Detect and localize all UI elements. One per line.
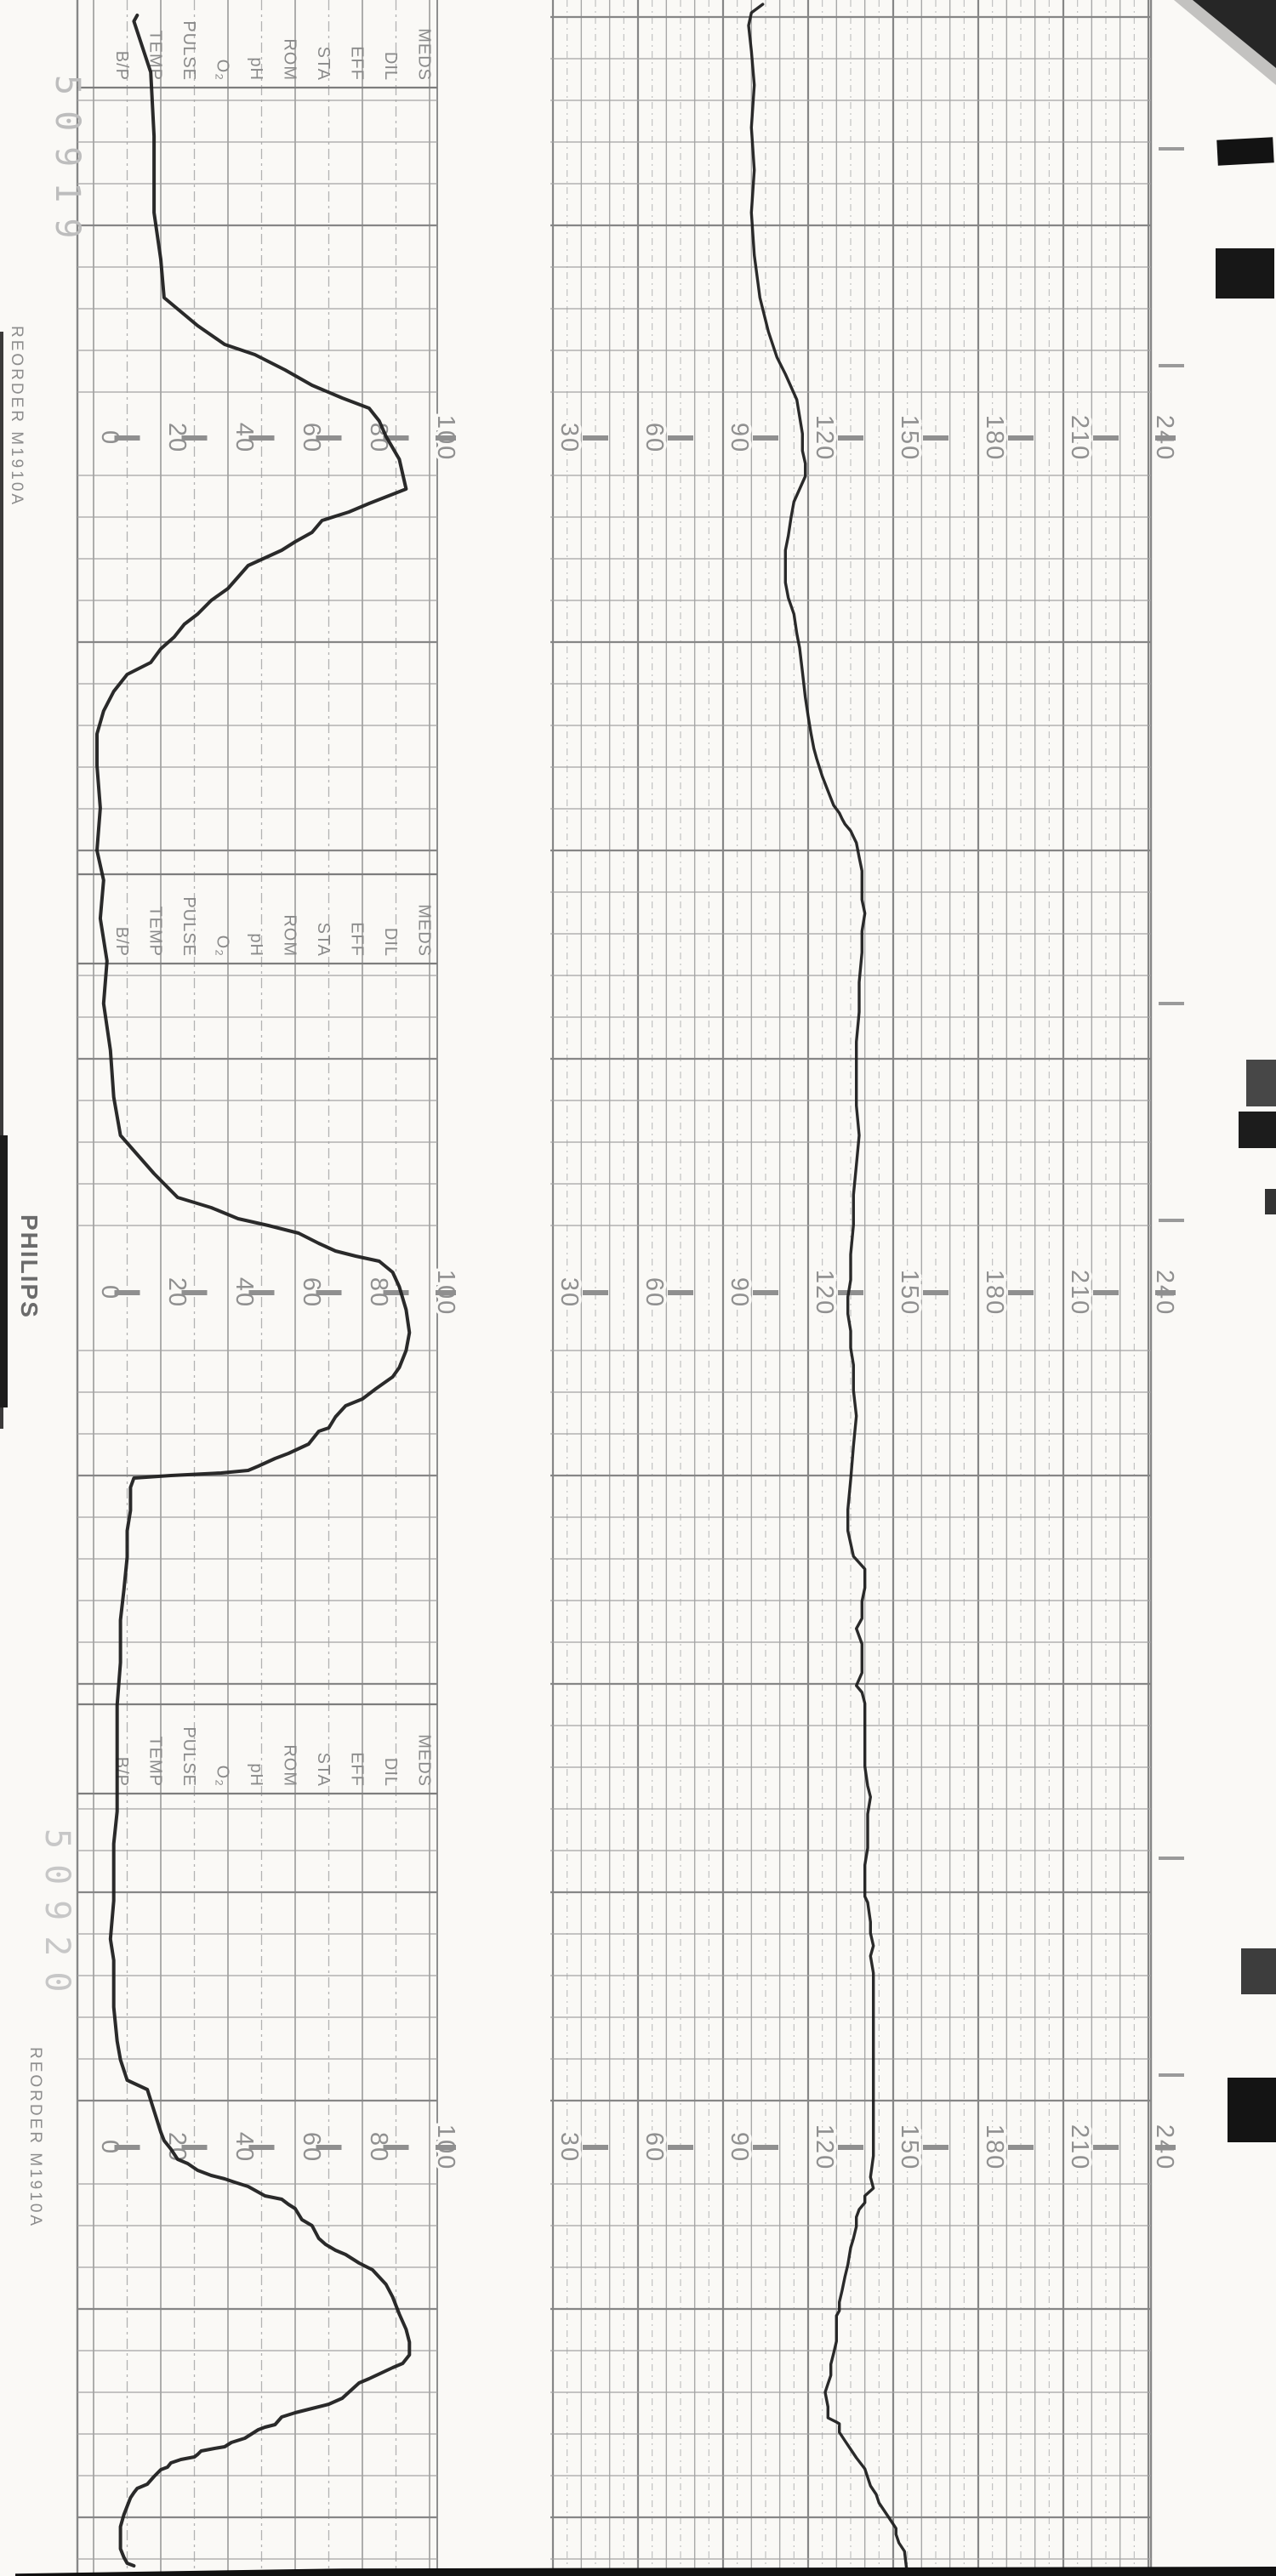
annotation-label-rom: ROM bbox=[280, 1744, 299, 1787]
ctg-strip-chart: B/PTEMPPULSEO₂pHROMSTAEFFDILMEDSB/PTEMPP… bbox=[0, 0, 1276, 2576]
annotation-label-bp: B/P bbox=[112, 51, 131, 81]
reorder-text-top: REORDER M1910A bbox=[7, 326, 26, 507]
annotation-label-dil: DIL bbox=[381, 52, 400, 81]
annotation-label-sta: STA bbox=[314, 47, 333, 81]
annotation-label-pulse: PULSE bbox=[179, 20, 198, 81]
scan-artifact-mark bbox=[1265, 1189, 1276, 1214]
scan-artifact-mark bbox=[1239, 1112, 1276, 1148]
annotation-label-eff: EFF bbox=[347, 46, 366, 81]
annotation-label-ph: pH bbox=[247, 57, 265, 81]
annotation-label-o: O₂ bbox=[213, 1766, 231, 1787]
scan-artifact-mark bbox=[1216, 137, 1273, 165]
annotation-label-pulse: PULSE bbox=[179, 896, 198, 957]
annotation-label-o: O₂ bbox=[213, 60, 231, 81]
scan-artifact-mark bbox=[1216, 248, 1274, 299]
page-number-stamp-bottom: 50920 bbox=[37, 1828, 77, 2007]
annotation-label-temp: TEMP bbox=[145, 906, 164, 957]
fhr-axis-label: 210 bbox=[1066, 2124, 1093, 2170]
annotation-label-ph: pH bbox=[247, 933, 265, 957]
annotation-label-dil: DIL bbox=[381, 1758, 400, 1787]
fhr-axis-label: 210 bbox=[1066, 415, 1093, 461]
fhr-axis-label: 120 bbox=[811, 415, 838, 461]
fhr-axis-label: 90 bbox=[726, 423, 753, 453]
scan-artifact-left-edge-strip bbox=[0, 1135, 8, 1407]
annotation-label-eff: EFF bbox=[347, 1752, 366, 1787]
fhr-axis-label: 30 bbox=[555, 2132, 583, 2163]
fhr-axis-label: 210 bbox=[1066, 1270, 1093, 1316]
scan-artifact-mark bbox=[1246, 1060, 1276, 1106]
fhr-axis-label: 60 bbox=[641, 2132, 668, 2163]
fhr-axis-label: 30 bbox=[555, 423, 583, 453]
annotation-label-ph: pH bbox=[247, 1763, 265, 1787]
annotation-label-bp: B/P bbox=[112, 927, 131, 957]
annotation-label-bp: B/P bbox=[112, 1757, 131, 1787]
annotation-label-rom: ROM bbox=[280, 38, 299, 81]
annotation-label-meds: MEDS bbox=[414, 28, 433, 81]
fhr-axis-label: 150 bbox=[896, 1270, 923, 1316]
fhr-axis-label: 60 bbox=[641, 1277, 668, 1308]
ctg-paper-scan: B/PTEMPPULSEO₂pHROMSTAEFFDILMEDSB/PTEMPP… bbox=[0, 0, 1276, 2576]
scan-artifact-mark bbox=[1241, 1948, 1276, 1994]
annotation-label-rom: ROM bbox=[280, 914, 299, 957]
fhr-axis-label: 60 bbox=[641, 423, 668, 453]
philips-logo: PHILIPS bbox=[15, 1214, 43, 1319]
annotation-blocks: B/PTEMPPULSEO₂pHROMSTAEFFDILMEDSB/PTEMPP… bbox=[77, 20, 437, 1794]
annotation-label-dil: DIL bbox=[381, 928, 400, 957]
reorder-text-bottom: REORDER M1910A bbox=[26, 2047, 44, 2228]
annotation-label-pulse: PULSE bbox=[179, 1726, 198, 1787]
annotation-label-meds: MEDS bbox=[414, 1734, 433, 1787]
fhr-axis-label: 150 bbox=[896, 2124, 923, 2170]
annotation-label-sta: STA bbox=[314, 923, 333, 957]
fhr-axis-label: 180 bbox=[981, 415, 1008, 461]
scan-artifact-mark bbox=[1228, 2078, 1276, 2142]
fhr-axis-label: 120 bbox=[811, 2124, 838, 2170]
scan-artifact-corner-triangle-core bbox=[1193, 0, 1276, 68]
fhr-axis-label: 90 bbox=[726, 1277, 753, 1308]
annotation-label-o: O₂ bbox=[213, 935, 231, 957]
annotation-label-meds: MEDS bbox=[414, 904, 433, 957]
fhr-axis-label: 180 bbox=[981, 2124, 1008, 2170]
fhr-axis-label: 150 bbox=[896, 415, 923, 461]
annotation-label-eff: EFF bbox=[347, 922, 366, 957]
page-number-stamp-top: 50919 bbox=[48, 75, 87, 253]
fhr-axis-label: 180 bbox=[981, 1270, 1008, 1316]
fhr-axis-label: 30 bbox=[555, 1277, 583, 1308]
annotation-label-sta: STA bbox=[314, 1753, 333, 1787]
annotation-label-temp: TEMP bbox=[145, 1736, 164, 1787]
annotation-label-temp: TEMP bbox=[145, 30, 164, 81]
fhr-axis-label: 120 bbox=[811, 1270, 838, 1316]
fhr-axis-label: 90 bbox=[726, 2132, 753, 2163]
